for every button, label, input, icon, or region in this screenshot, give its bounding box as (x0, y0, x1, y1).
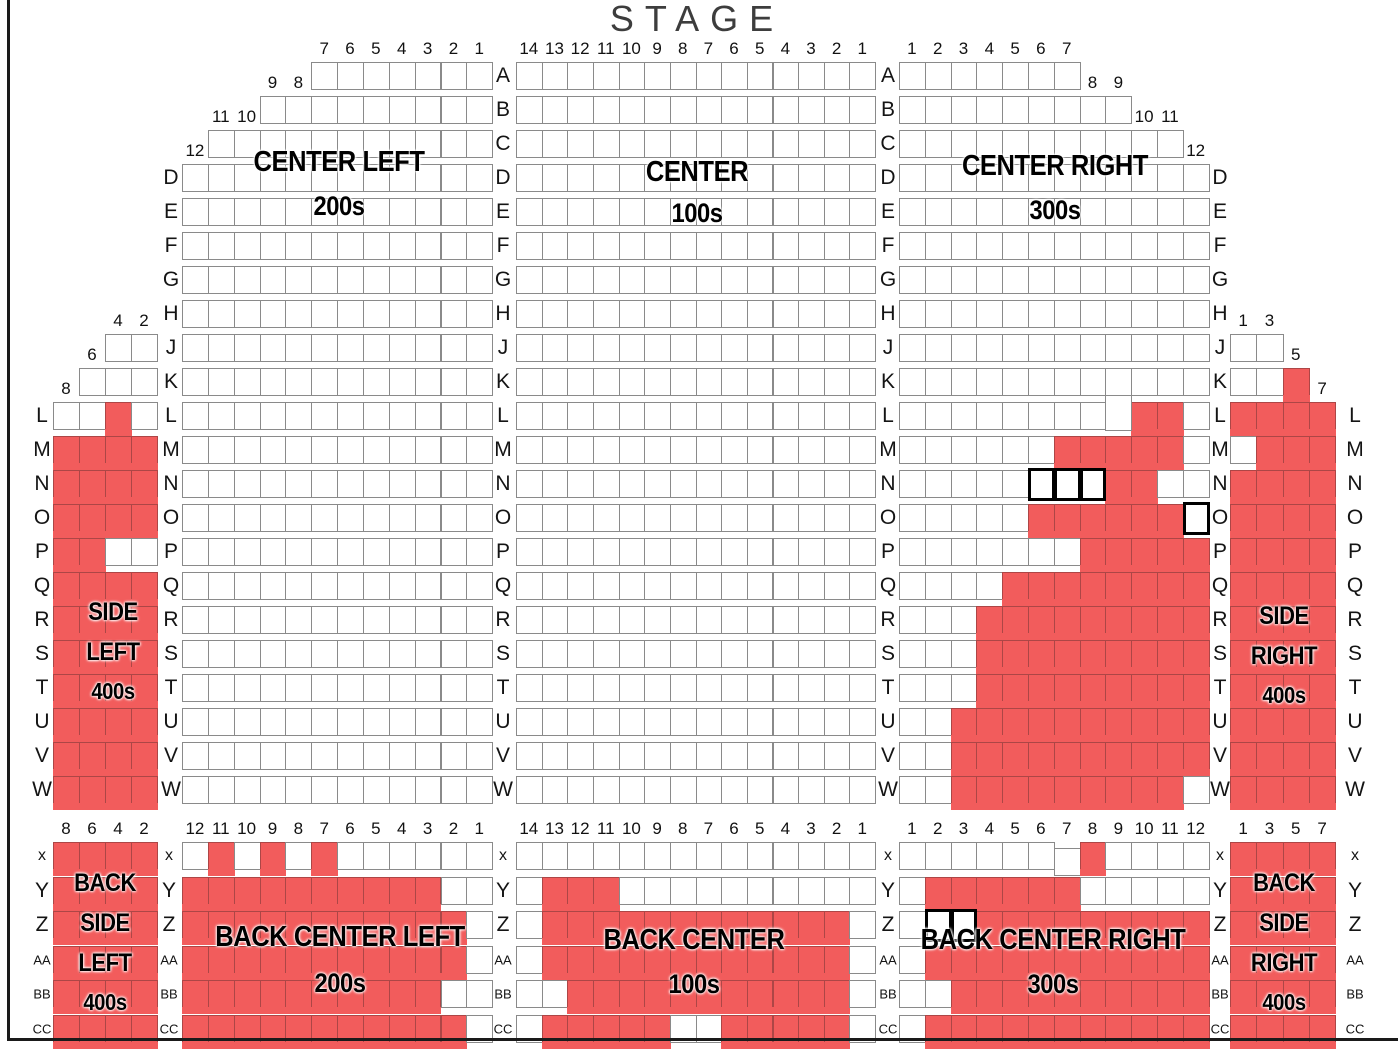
seat-center-right-H7[interactable] (1054, 300, 1081, 328)
seat-center-left-U11[interactable] (208, 708, 235, 736)
seat-center-C5[interactable] (747, 130, 774, 158)
seat-center-right-N8[interactable] (1080, 468, 1107, 501)
seat-center-right-R2[interactable] (925, 606, 952, 634)
seat-center-right-P6[interactable] (1028, 538, 1055, 566)
seat-center-K11[interactable] (593, 368, 620, 396)
seat-center-left-K6[interactable] (337, 368, 364, 396)
seat-back-center-left-Y2[interactable] (441, 877, 468, 905)
seat-center-right-G6[interactable] (1028, 266, 1055, 294)
seat-side-left-J2[interactable] (131, 334, 158, 362)
seat-center-left-M7[interactable] (311, 436, 338, 464)
seat-center-V13[interactable] (542, 742, 569, 770)
seat-center-right-A2[interactable] (925, 62, 952, 90)
seat-back-center-left-Y8[interactable] (285, 877, 312, 905)
seat-center-right-J5[interactable] (1002, 334, 1029, 362)
seat-center-right-M9[interactable] (1105, 436, 1132, 464)
seat-center-left-P1[interactable] (466, 538, 493, 566)
seat-center-right-T6[interactable] (1028, 674, 1055, 702)
seat-center-right-T11[interactable] (1157, 674, 1184, 702)
seat-side-right-R1[interactable] (1230, 606, 1257, 634)
seat-side-left-V8[interactable] (53, 742, 80, 770)
seat-center-R10[interactable] (619, 606, 646, 634)
seat-center-right-W10[interactable] (1131, 776, 1158, 804)
seat-center-left-V8[interactable] (285, 742, 312, 770)
seat-center-left-R9[interactable] (260, 606, 287, 634)
seat-center-left-V7[interactable] (311, 742, 338, 770)
seat-center-left-T11[interactable] (208, 674, 235, 702)
seat-center-right-D1[interactable] (899, 164, 926, 192)
seat-back-center-AA3[interactable] (798, 946, 825, 974)
seat-center-right-W9[interactable] (1105, 776, 1132, 804)
seat-center-right-H6[interactable] (1028, 300, 1055, 328)
seat-back-center-left-AA1[interactable] (466, 946, 493, 974)
seat-back-center-right-x12[interactable] (1183, 842, 1210, 870)
seat-center-U10[interactable] (619, 708, 646, 736)
seat-side-right-Q7[interactable] (1309, 572, 1336, 600)
seat-back-center-right-BB11[interactable] (1157, 980, 1184, 1008)
seat-back-center-BB13[interactable] (542, 980, 569, 1008)
seat-center-H2[interactable] (824, 300, 851, 328)
seat-center-left-M1[interactable] (466, 436, 493, 464)
seat-back-center-left-Y5[interactable] (363, 877, 390, 905)
seat-back-center-x5[interactable] (747, 842, 774, 870)
seat-center-right-O3[interactable] (951, 504, 978, 532)
seat-center-Q5[interactable] (747, 572, 774, 600)
seat-center-J11[interactable] (593, 334, 620, 362)
seat-back-center-left-Y11[interactable] (208, 877, 235, 905)
seat-center-left-J2[interactable] (441, 334, 468, 362)
seat-back-side-left-Z8[interactable] (53, 911, 80, 939)
seat-center-right-J2[interactable] (925, 334, 952, 362)
seat-back-center-right-BB2[interactable] (925, 980, 952, 1008)
seat-center-left-W7[interactable] (311, 776, 338, 804)
seat-center-B13[interactable] (542, 96, 569, 124)
seat-center-B6[interactable] (721, 96, 748, 124)
seat-center-left-E10[interactable] (234, 198, 261, 226)
seat-back-center-x1[interactable] (849, 842, 876, 870)
seat-side-right-U3[interactable] (1256, 708, 1283, 736)
seat-center-right-B1[interactable] (899, 96, 926, 124)
seat-center-E5[interactable] (747, 198, 774, 226)
seat-center-Q13[interactable] (542, 572, 569, 600)
seat-back-center-right-x11[interactable] (1157, 842, 1184, 870)
seat-center-E11[interactable] (593, 198, 620, 226)
seat-center-J3[interactable] (798, 334, 825, 362)
seat-back-side-left-x8[interactable] (53, 842, 80, 870)
seat-center-G4[interactable] (773, 266, 800, 294)
seat-center-left-H3[interactable] (415, 300, 442, 328)
seat-center-left-U3[interactable] (415, 708, 442, 736)
seat-center-left-W9[interactable] (260, 776, 287, 804)
seat-side-left-Q4[interactable] (105, 572, 132, 600)
seat-center-left-G7[interactable] (311, 266, 338, 294)
seat-center-H9[interactable] (644, 300, 671, 328)
seat-center-left-U10[interactable] (234, 708, 261, 736)
seat-center-U3[interactable] (798, 708, 825, 736)
seat-center-S12[interactable] (567, 640, 594, 668)
seat-center-left-R10[interactable] (234, 606, 261, 634)
seat-center-left-H5[interactable] (363, 300, 390, 328)
seat-center-left-S7[interactable] (311, 640, 338, 668)
seat-center-left-W3[interactable] (415, 776, 442, 804)
seat-back-center-left-BB5[interactable] (363, 980, 390, 1008)
seat-center-right-F10[interactable] (1131, 232, 1158, 260)
seat-center-right-K3[interactable] (951, 368, 978, 396)
seat-center-G12[interactable] (567, 266, 594, 294)
seat-center-L6[interactable] (721, 402, 748, 430)
seat-center-N13[interactable] (542, 470, 569, 498)
seat-center-right-S2[interactable] (925, 640, 952, 668)
seat-center-left-L8[interactable] (285, 402, 312, 430)
seat-back-center-left-x6[interactable] (337, 842, 364, 870)
seat-back-center-left-Y3[interactable] (415, 877, 442, 905)
seat-center-C7[interactable] (696, 130, 723, 158)
seat-center-left-U8[interactable] (285, 708, 312, 736)
seat-back-center-x9[interactable] (644, 842, 671, 870)
seat-center-left-Q5[interactable] (363, 572, 390, 600)
seat-center-V5[interactable] (747, 742, 774, 770)
seat-center-left-T10[interactable] (234, 674, 261, 702)
seat-side-right-K1[interactable] (1230, 368, 1257, 396)
seat-center-left-O6[interactable] (337, 504, 364, 532)
seat-center-right-J11[interactable] (1157, 334, 1184, 362)
seat-center-right-H9[interactable] (1105, 300, 1132, 328)
seat-center-right-V10[interactable] (1131, 742, 1158, 770)
seat-back-center-x2[interactable] (824, 842, 851, 870)
seat-center-left-P3[interactable] (415, 538, 442, 566)
seat-side-right-T7[interactable] (1309, 674, 1336, 702)
seat-center-right-E11[interactable] (1157, 198, 1184, 226)
seat-center-right-J10[interactable] (1131, 334, 1158, 362)
seat-side-right-W5[interactable] (1283, 776, 1310, 804)
seat-center-left-N10[interactable] (234, 470, 261, 498)
seat-center-right-F9[interactable] (1105, 232, 1132, 260)
seat-center-left-E12[interactable] (182, 198, 209, 226)
seat-center-right-R3[interactable] (951, 606, 978, 634)
seat-center-left-T3[interactable] (415, 674, 442, 702)
seat-side-right-O7[interactable] (1309, 504, 1336, 532)
seat-center-C4[interactable] (773, 130, 800, 158)
seat-side-right-O5[interactable] (1283, 504, 1310, 532)
seat-center-W9[interactable] (644, 776, 671, 804)
seat-center-left-L5[interactable] (363, 402, 390, 430)
seat-back-center-BB2[interactable] (824, 980, 851, 1008)
seat-center-left-M12[interactable] (182, 436, 209, 464)
seat-center-right-F4[interactable] (976, 232, 1003, 260)
seat-center-M3[interactable] (798, 436, 825, 464)
seat-center-T3[interactable] (798, 674, 825, 702)
seat-center-T9[interactable] (644, 674, 671, 702)
seat-center-V9[interactable] (644, 742, 671, 770)
seat-center-right-O7[interactable] (1054, 504, 1081, 532)
seat-center-right-L1[interactable] (899, 402, 926, 430)
seat-center-right-L9[interactable] (1105, 395, 1132, 431)
seat-center-A4[interactable] (773, 62, 800, 90)
seat-side-right-N1[interactable] (1230, 470, 1257, 498)
seat-back-center-right-Y12[interactable] (1183, 877, 1210, 905)
seat-center-right-J3[interactable] (951, 334, 978, 362)
seat-center-right-P2[interactable] (925, 538, 952, 566)
seat-side-right-V3[interactable] (1256, 742, 1283, 770)
seat-center-right-U10[interactable] (1131, 708, 1158, 736)
seat-center-F10[interactable] (619, 232, 646, 260)
seat-center-left-L9[interactable] (260, 402, 287, 430)
seat-center-right-L4[interactable] (976, 402, 1003, 430)
seat-side-left-Q8[interactable] (53, 572, 80, 600)
seat-center-left-B9[interactable] (260, 96, 287, 124)
seat-center-left-B5[interactable] (363, 96, 390, 124)
seat-back-center-x14[interactable] (516, 842, 543, 870)
seat-center-left-D12[interactable] (182, 164, 209, 192)
seat-center-left-F2[interactable] (441, 232, 468, 260)
seat-back-center-right-x9[interactable] (1105, 842, 1132, 870)
seat-center-left-K4[interactable] (389, 368, 416, 396)
seat-center-right-Q2[interactable] (925, 572, 952, 600)
seat-side-left-U8[interactable] (53, 708, 80, 736)
seat-center-right-G12[interactable] (1183, 266, 1210, 294)
seat-center-S3[interactable] (798, 640, 825, 668)
seat-side-right-L5[interactable] (1283, 402, 1310, 430)
seat-back-center-right-x6[interactable] (1028, 842, 1055, 870)
seat-center-M11[interactable] (593, 436, 620, 464)
seat-center-E12[interactable] (567, 198, 594, 226)
seat-center-N8[interactable] (670, 470, 697, 498)
seat-center-S6[interactable] (721, 640, 748, 668)
seat-center-left-K10[interactable] (234, 368, 261, 396)
seat-center-left-T2[interactable] (441, 674, 468, 702)
seat-center-left-O7[interactable] (311, 504, 338, 532)
seat-center-left-K9[interactable] (260, 368, 287, 396)
seat-center-right-C1[interactable] (899, 130, 926, 158)
seat-back-center-x8[interactable] (670, 842, 697, 870)
seat-center-C14[interactable] (516, 130, 543, 158)
seat-side-left-T2[interactable] (131, 674, 158, 702)
seat-side-right-P1[interactable] (1230, 538, 1257, 566)
seat-center-left-Q6[interactable] (337, 572, 364, 600)
seat-center-left-R5[interactable] (363, 606, 390, 634)
seat-center-left-N11[interactable] (208, 470, 235, 498)
seat-back-center-left-Y10[interactable] (234, 877, 261, 905)
seat-center-left-R7[interactable] (311, 606, 338, 634)
seat-center-right-V4[interactable] (976, 742, 1003, 770)
seat-center-D14[interactable] (516, 164, 543, 192)
seat-center-Q14[interactable] (516, 572, 543, 600)
seat-center-left-K3[interactable] (415, 368, 442, 396)
seat-back-center-left-x5[interactable] (363, 842, 390, 870)
seat-center-C3[interactable] (798, 130, 825, 158)
seat-center-O6[interactable] (721, 504, 748, 532)
seat-back-center-right-BB12[interactable] (1183, 980, 1210, 1008)
seat-center-left-P7[interactable] (311, 538, 338, 566)
seat-center-left-R8[interactable] (285, 606, 312, 634)
seat-center-right-M7[interactable] (1054, 436, 1081, 464)
seat-center-left-U12[interactable] (182, 708, 209, 736)
seat-center-right-L6[interactable] (1028, 402, 1055, 430)
seat-back-side-right-BB7[interactable] (1309, 980, 1336, 1008)
seat-center-N11[interactable] (593, 470, 620, 498)
seat-center-T1[interactable] (849, 674, 876, 702)
seat-center-G3[interactable] (798, 266, 825, 294)
seat-center-W12[interactable] (567, 776, 594, 804)
seat-center-S13[interactable] (542, 640, 569, 668)
seat-center-left-W8[interactable] (285, 776, 312, 804)
seat-center-A10[interactable] (619, 62, 646, 90)
seat-side-left-P6[interactable] (79, 538, 106, 566)
seat-center-left-B3[interactable] (415, 96, 442, 124)
seat-center-L8[interactable] (670, 402, 697, 430)
seat-center-right-G5[interactable] (1002, 266, 1029, 294)
seat-back-side-left-BB2[interactable] (131, 980, 158, 1008)
seat-back-center-left-BB4[interactable] (389, 980, 416, 1008)
seat-back-center-x3[interactable] (798, 842, 825, 870)
seat-back-center-left-x8[interactable] (285, 842, 312, 870)
seat-center-left-W4[interactable] (389, 776, 416, 804)
seat-center-right-Q8[interactable] (1080, 572, 1107, 600)
seat-center-right-P9[interactable] (1105, 538, 1132, 566)
seat-center-right-T1[interactable] (899, 674, 926, 702)
seat-center-right-K2[interactable] (925, 368, 952, 396)
seat-center-right-L10[interactable] (1131, 402, 1158, 430)
seat-center-Q7[interactable] (696, 572, 723, 600)
seat-center-right-N9[interactable] (1105, 470, 1132, 498)
seat-center-left-F8[interactable] (285, 232, 312, 260)
seat-center-H6[interactable] (721, 300, 748, 328)
seat-center-right-J1[interactable] (899, 334, 926, 362)
seat-center-right-T2[interactable] (925, 674, 952, 702)
seat-center-right-P12[interactable] (1183, 538, 1210, 566)
seat-center-left-V1[interactable] (466, 742, 493, 770)
seat-center-left-G6[interactable] (337, 266, 364, 294)
seat-center-left-E3[interactable] (415, 198, 442, 226)
seat-center-P4[interactable] (773, 538, 800, 566)
seat-center-right-Q12[interactable] (1183, 572, 1210, 600)
seat-center-G14[interactable] (516, 266, 543, 294)
seat-center-right-C11[interactable] (1157, 130, 1184, 158)
seat-back-side-left-x6[interactable] (79, 842, 106, 870)
seat-center-right-J6[interactable] (1028, 334, 1055, 362)
seat-center-M6[interactable] (721, 436, 748, 464)
seat-center-left-L7[interactable] (311, 402, 338, 430)
seat-center-left-V11[interactable] (208, 742, 235, 770)
seat-side-right-L3[interactable] (1256, 402, 1283, 430)
seat-center-left-S9[interactable] (260, 640, 287, 668)
seat-center-W4[interactable] (773, 776, 800, 804)
seat-center-left-R11[interactable] (208, 606, 235, 634)
seat-center-left-D1[interactable] (466, 164, 493, 192)
seat-center-left-O12[interactable] (182, 504, 209, 532)
seat-center-right-J8[interactable] (1080, 334, 1107, 362)
seat-back-center-right-x8[interactable] (1080, 842, 1107, 870)
seat-center-K14[interactable] (516, 368, 543, 396)
seat-center-left-S3[interactable] (415, 640, 442, 668)
seat-center-left-H11[interactable] (208, 300, 235, 328)
seat-center-right-S5[interactable] (1002, 640, 1029, 668)
seat-center-left-K8[interactable] (285, 368, 312, 396)
seat-side-left-P8[interactable] (53, 538, 80, 566)
seat-back-center-Z14[interactable] (516, 911, 543, 939)
seat-center-N1[interactable] (849, 470, 876, 498)
seat-center-K9[interactable] (644, 368, 671, 396)
seat-center-right-K5[interactable] (1002, 368, 1029, 396)
seat-center-right-L3[interactable] (951, 402, 978, 430)
seat-center-left-S11[interactable] (208, 640, 235, 668)
seat-center-Q6[interactable] (721, 572, 748, 600)
seat-center-left-V4[interactable] (389, 742, 416, 770)
seat-back-center-x13[interactable] (542, 842, 569, 870)
seat-back-center-Y3[interactable] (798, 877, 825, 905)
seat-center-right-S7[interactable] (1054, 640, 1081, 668)
seat-center-left-W5[interactable] (363, 776, 390, 804)
seat-center-T10[interactable] (619, 674, 646, 702)
seat-back-center-right-x2[interactable] (925, 842, 952, 870)
seat-center-right-S10[interactable] (1131, 640, 1158, 668)
seat-center-K5[interactable] (747, 368, 774, 396)
seat-center-V8[interactable] (670, 742, 697, 770)
seat-center-right-T10[interactable] (1131, 674, 1158, 702)
seat-center-F12[interactable] (567, 232, 594, 260)
seat-center-left-T4[interactable] (389, 674, 416, 702)
seat-center-right-L5[interactable] (1002, 402, 1029, 430)
seat-center-left-J10[interactable] (234, 334, 261, 362)
seat-side-right-V1[interactable] (1230, 742, 1257, 770)
seat-center-left-P9[interactable] (260, 538, 287, 566)
seat-center-left-F3[interactable] (415, 232, 442, 260)
seat-side-left-W6[interactable] (79, 776, 106, 804)
seat-center-right-P4[interactable] (976, 538, 1003, 566)
seat-center-left-N9[interactable] (260, 470, 287, 498)
seat-center-B3[interactable] (798, 96, 825, 124)
seat-center-N2[interactable] (824, 470, 851, 498)
seat-center-left-B8[interactable] (285, 96, 312, 124)
seat-center-H3[interactable] (798, 300, 825, 328)
seat-center-L4[interactable] (773, 402, 800, 430)
seat-center-left-K7[interactable] (311, 368, 338, 396)
seat-center-right-T5[interactable] (1002, 674, 1029, 702)
seat-center-R4[interactable] (773, 606, 800, 634)
seat-center-T5[interactable] (747, 674, 774, 702)
seat-back-side-right-x1[interactable] (1230, 842, 1257, 870)
seat-center-left-T12[interactable] (182, 674, 209, 702)
seat-back-center-left-x11[interactable] (208, 842, 235, 870)
seat-center-left-T1[interactable] (466, 674, 493, 702)
seat-center-left-D11[interactable] (208, 164, 235, 192)
seat-center-right-M11[interactable] (1157, 436, 1184, 464)
seat-center-right-W5[interactable] (1002, 776, 1029, 804)
seat-center-F5[interactable] (747, 232, 774, 260)
seat-side-left-N2[interactable] (131, 470, 158, 498)
seat-center-T4[interactable] (773, 674, 800, 702)
seat-center-F7[interactable] (696, 232, 723, 260)
seat-center-right-O12[interactable] (1183, 502, 1210, 535)
seat-center-left-N7[interactable] (311, 470, 338, 498)
seat-center-left-Q7[interactable] (311, 572, 338, 600)
seat-side-right-O3[interactable] (1256, 504, 1283, 532)
seat-center-right-K7[interactable] (1054, 368, 1081, 396)
seat-center-right-R10[interactable] (1131, 606, 1158, 634)
seat-center-left-B4[interactable] (389, 96, 416, 124)
seat-center-P8[interactable] (670, 538, 697, 566)
seat-center-left-U5[interactable] (363, 708, 390, 736)
seat-side-right-M1[interactable] (1230, 436, 1257, 464)
seat-side-left-K4[interactable] (105, 368, 132, 396)
seat-center-E2[interactable] (824, 198, 851, 226)
seat-center-left-R6[interactable] (337, 606, 364, 634)
seat-center-J2[interactable] (824, 334, 851, 362)
seat-side-right-P3[interactable] (1256, 538, 1283, 566)
seat-center-right-U6[interactable] (1028, 708, 1055, 736)
seat-center-Q4[interactable] (773, 572, 800, 600)
seat-center-left-M4[interactable] (389, 436, 416, 464)
